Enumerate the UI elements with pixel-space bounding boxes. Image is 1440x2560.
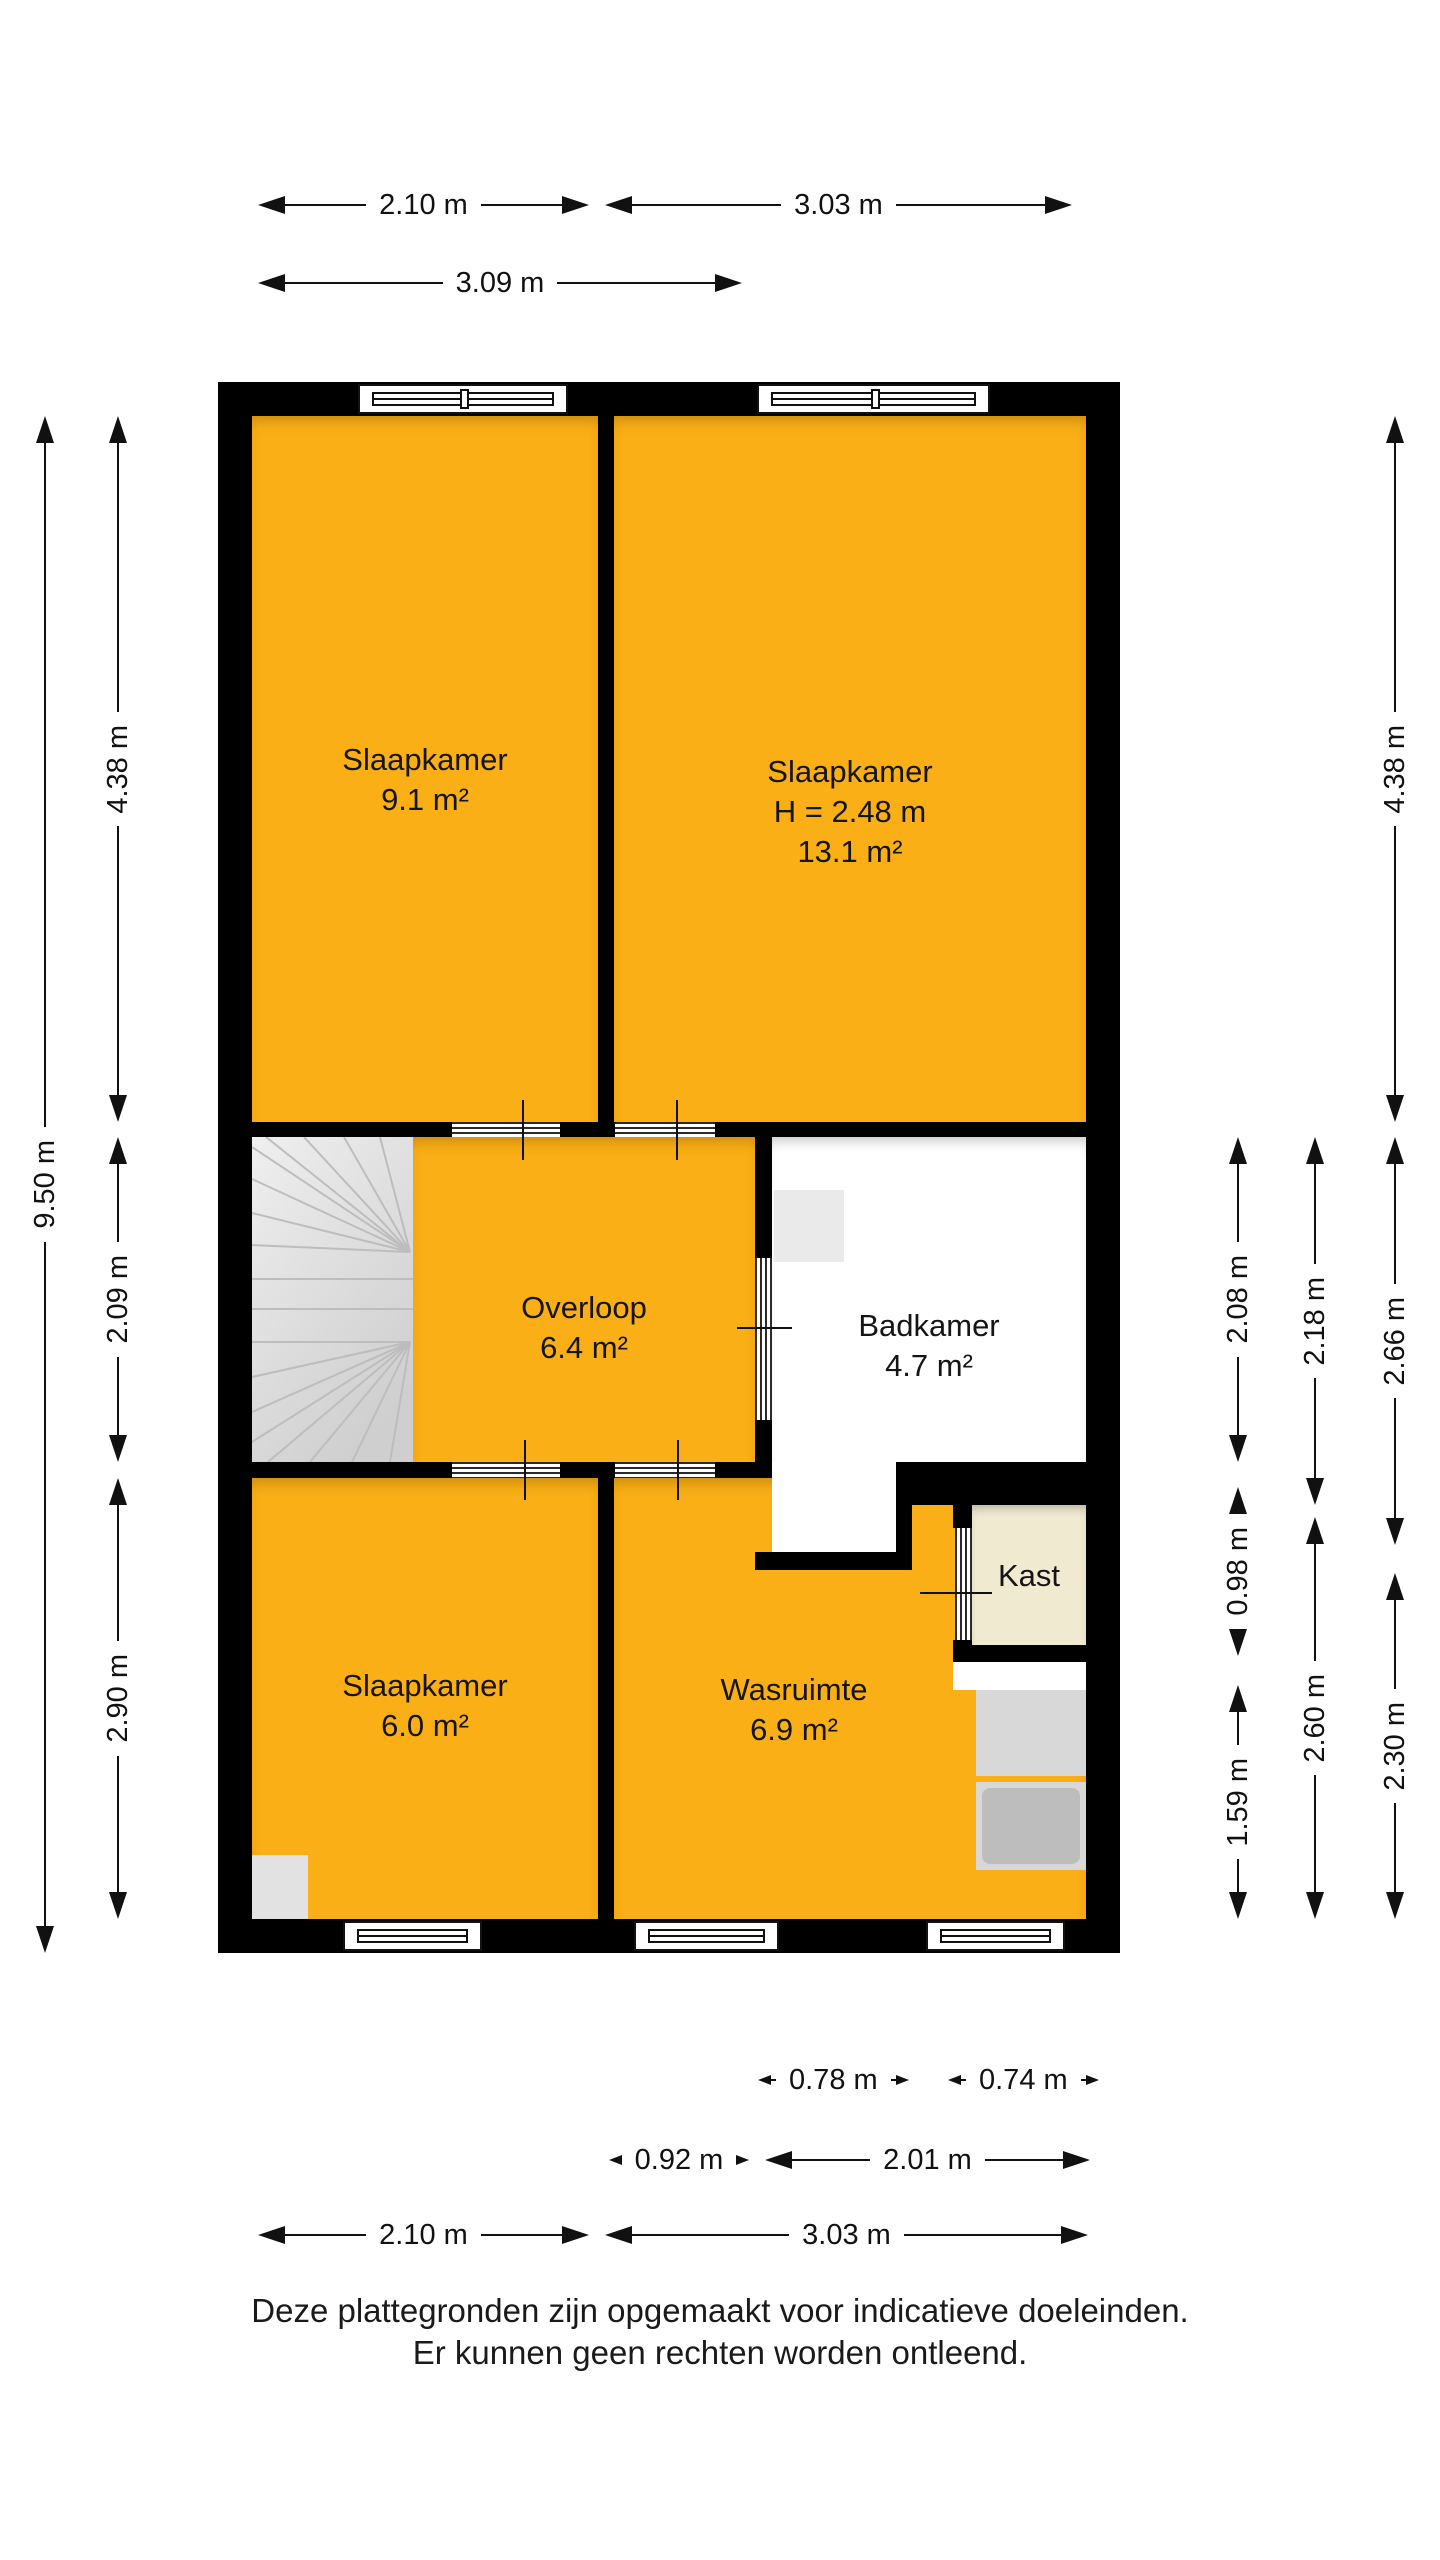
wall-kast-left-top	[953, 1505, 972, 1528]
wall-kast-bottom	[953, 1645, 1086, 1662]
dim-bottom-2-10: 2.10 m	[258, 2218, 589, 2252]
dim-right-2-30: 2.30 m	[1377, 1573, 1413, 1919]
dim-right-0-98: 0.98 m	[1220, 1487, 1256, 1650]
dim-right-2-08: 2.08 m	[1220, 1137, 1256, 1462]
disclaimer-line-1: Deze plattegronden zijn opgemaakt voor i…	[0, 2290, 1440, 2332]
room-area: 4.7 m²	[772, 1346, 1086, 1386]
staircase	[252, 1137, 413, 1462]
door-tick-1	[522, 1100, 524, 1160]
room-area: 6.9 m²	[614, 1710, 974, 1750]
window-top-right	[757, 384, 990, 414]
window-mullion	[871, 389, 880, 409]
washer-top	[976, 1690, 1086, 1776]
wall-bathroom-bottom-right	[896, 1462, 1086, 1505]
dim-bottom-2-01: 2.01 m	[765, 2143, 1090, 2177]
room-height: H = 2.48 m	[614, 792, 1086, 832]
door-badkamer	[755, 1258, 772, 1420]
wall-step-bottom	[755, 1552, 912, 1570]
door-tick-2	[676, 1100, 678, 1160]
wall-bedroom-laundry	[598, 1478, 614, 1919]
label-wasruimte: Wasruimte 6.9 m²	[614, 1670, 974, 1750]
room-name: Slaapkamer	[614, 752, 1086, 792]
room-name: Slaapkamer	[252, 740, 598, 780]
disclaimer-line-2: Er kunnen geen rechten worden ontleend.	[0, 2332, 1440, 2374]
label-bedroom-9-1: Slaapkamer 9.1 m²	[252, 740, 598, 820]
label-badkamer: Badkamer 4.7 m²	[772, 1306, 1086, 1386]
room-area: 13.1 m²	[614, 832, 1086, 872]
label-kast: Kast	[972, 1556, 1086, 1596]
label-overloop: Overloop 6.4 m²	[413, 1288, 755, 1368]
door-bedroom-13-1	[615, 1122, 715, 1137]
room-name: Slaapkamer	[252, 1666, 598, 1706]
room-name: Badkamer	[772, 1306, 1086, 1346]
room-name: Overloop	[413, 1288, 755, 1328]
door-wasruimte	[615, 1462, 715, 1478]
window-bottom-middle	[634, 1921, 779, 1951]
dim-top-3-03: 3.03 m	[605, 188, 1072, 222]
room-area: 6.0 m²	[252, 1706, 598, 1746]
washing-machine-drum	[982, 1788, 1080, 1864]
window-glass	[357, 1929, 468, 1943]
room-area: 6.4 m²	[413, 1328, 755, 1368]
dim-bottom-0-78: 0.78 m	[758, 2063, 922, 2097]
door-bedroom-9-1	[452, 1122, 560, 1137]
window-bottom-left	[343, 1921, 482, 1951]
dim-left-9-50: 9.50 m	[27, 416, 63, 1953]
window-glass	[648, 1929, 765, 1943]
dim-left-2-09: 2.09 m	[100, 1137, 136, 1462]
room-area: 9.1 m²	[252, 780, 598, 820]
window-top-left	[358, 384, 568, 414]
bathroom-fixture	[774, 1190, 844, 1262]
door-tick-3	[524, 1440, 526, 1500]
room-name: Wasruimte	[614, 1670, 974, 1710]
dim-right-2-18: 2.18 m	[1297, 1137, 1333, 1505]
dim-right-1-59: 1.59 m	[1220, 1685, 1256, 1919]
washing-machine	[976, 1782, 1086, 1870]
dim-bottom-0-74: 0.74 m	[948, 2063, 1112, 2097]
dim-top-3-09: 3.09 m	[258, 266, 742, 300]
label-bedroom-13-1: Slaapkamer H = 2.48 m 13.1 m²	[614, 752, 1086, 872]
room-name: Kast	[972, 1556, 1086, 1596]
room-badkamer	[772, 1137, 1086, 1462]
bedroom-corner-niche	[252, 1855, 308, 1919]
floorplan-page: Slaapkamer 9.1 m² Slaapkamer H = 2.48 m …	[0, 0, 1440, 2560]
dim-top-2-10: 2.10 m	[258, 188, 589, 222]
door-kast	[955, 1528, 972, 1640]
wall-between-bedrooms	[598, 416, 614, 1122]
window-mullion	[460, 389, 469, 409]
dim-bottom-3-03: 3.03 m	[605, 2218, 1088, 2252]
dim-right-4-38: 4.38 m	[1377, 416, 1413, 1122]
dim-right-2-60: 2.60 m	[1297, 1517, 1333, 1919]
label-bedroom-6-0: Slaapkamer 6.0 m²	[252, 1666, 598, 1746]
dim-left-2-90: 2.90 m	[100, 1478, 136, 1919]
door-bedroom-6-0	[452, 1462, 560, 1478]
dim-bottom-0-92: 0.92 m	[598, 2143, 760, 2177]
window-glass	[940, 1929, 1051, 1943]
bathroom-step	[772, 1462, 896, 1552]
door-tick-4	[677, 1440, 679, 1500]
dim-right-2-66: 2.66 m	[1377, 1137, 1413, 1545]
window-bottom-right	[926, 1921, 1065, 1951]
dim-left-4-38: 4.38 m	[100, 416, 136, 1122]
